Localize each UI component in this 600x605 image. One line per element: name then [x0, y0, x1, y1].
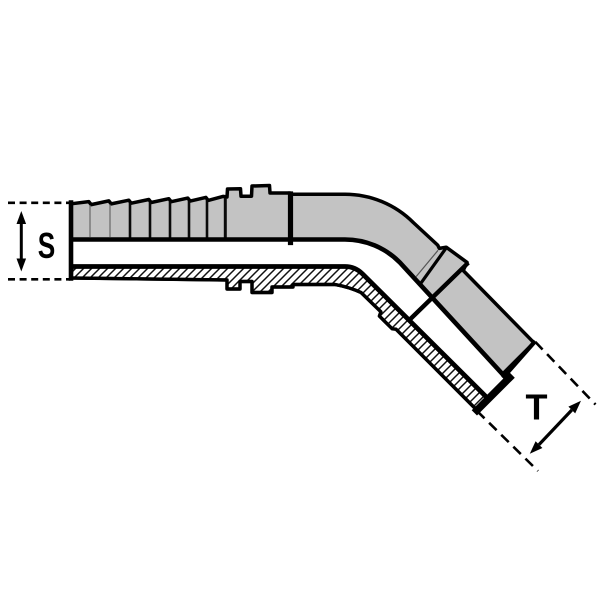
svg-text:T: T — [526, 387, 548, 428]
svg-text:S: S — [38, 225, 56, 266]
